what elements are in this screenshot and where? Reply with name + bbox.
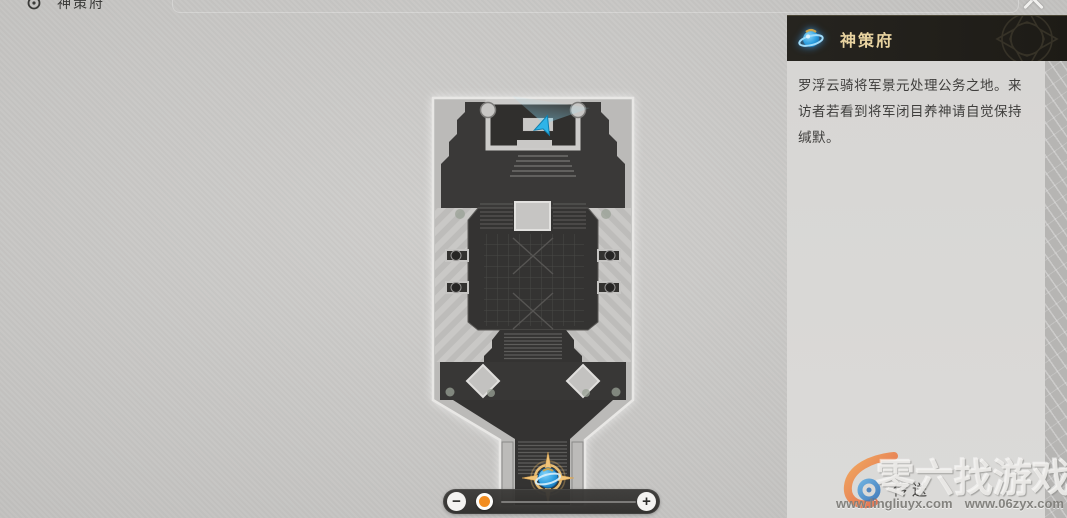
location-ring-icon (26, 0, 42, 11)
zoom-slider-handle[interactable] (476, 493, 493, 510)
location-description: 罗浮云骑将军景元处理公务之地。来访者若看到将军闭目养神请自觉保持缄默。 (787, 60, 1045, 151)
teleport-button[interactable]: 传送 (889, 477, 935, 502)
topbar-outline (172, 0, 1019, 13)
zoom-out-button[interactable]: − (447, 492, 466, 511)
zoom-in-button[interactable]: + (637, 492, 656, 511)
breadcrumb[interactable]: 神策府 (26, 0, 105, 13)
space-anchor-icon (796, 24, 826, 54)
panel-body: 罗浮云骑将军景元处理公务之地。来访者若看到将军闭目养神请自觉保持缄默。 (787, 60, 1045, 518)
map-canvas[interactable] (420, 90, 650, 518)
panel-header: 神策府 (787, 15, 1067, 61)
panel-side-texture (1045, 60, 1067, 518)
map-screen: 神策府 (0, 0, 1067, 518)
zoom-slider-track[interactable] (501, 501, 636, 503)
zoom-slider: − + (443, 489, 660, 514)
guardian-emblem-icon (985, 15, 1063, 61)
breadcrumb-label: 神策府 (57, 0, 105, 13)
close-button[interactable] (1019, 0, 1047, 13)
panel-title: 神策府 (840, 27, 894, 51)
